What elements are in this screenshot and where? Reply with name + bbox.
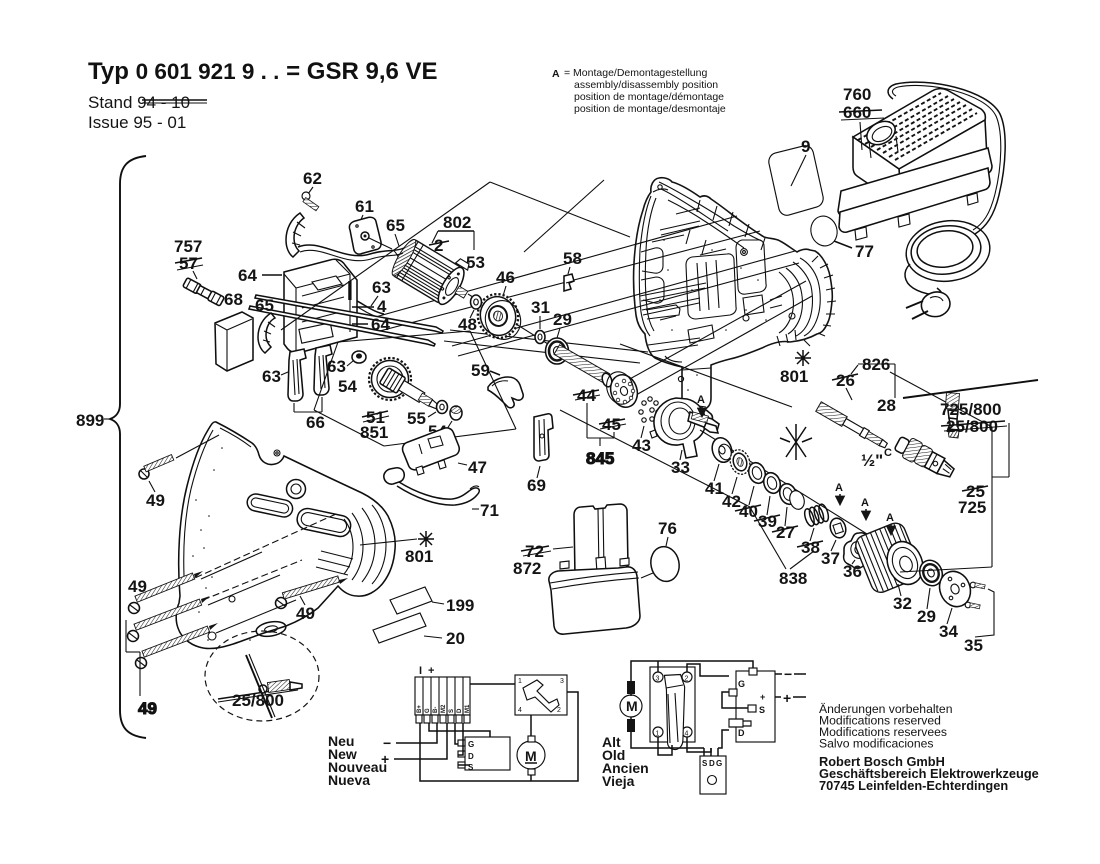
svg-text:44: 44 xyxy=(577,386,596,405)
svg-text:845: 845 xyxy=(586,449,614,468)
svg-text:851: 851 xyxy=(360,423,388,442)
svg-text:29: 29 xyxy=(917,607,936,626)
svg-text:35: 35 xyxy=(964,636,983,655)
svg-text:59: 59 xyxy=(471,361,490,380)
svg-text:801: 801 xyxy=(405,547,433,566)
svg-text:48: 48 xyxy=(458,315,477,334)
svg-text:47: 47 xyxy=(468,458,487,477)
svg-text:D: D xyxy=(709,759,715,768)
svg-text:A: A xyxy=(835,482,843,494)
svg-text:49: 49 xyxy=(146,491,165,510)
svg-text:D: D xyxy=(457,708,463,713)
svg-text:4: 4 xyxy=(685,731,689,738)
svg-text:2: 2 xyxy=(557,707,561,714)
svg-text:55: 55 xyxy=(407,409,426,428)
svg-text:position de montage/démontage: position de montage/démontage xyxy=(574,91,724,103)
svg-text:70745 Leinfelden-Echterdingen: 70745 Leinfelden-Echterdingen xyxy=(819,778,1008,793)
svg-text:43: 43 xyxy=(632,436,651,455)
svg-text:−: − xyxy=(784,666,792,682)
svg-text:Salvo modificaciones: Salvo modificaciones xyxy=(819,737,933,751)
svg-text:25/800: 25/800 xyxy=(232,691,284,710)
svg-text:4: 4 xyxy=(377,297,387,316)
svg-text:65: 65 xyxy=(386,216,405,235)
svg-text:68: 68 xyxy=(224,290,243,309)
svg-text:4: 4 xyxy=(518,707,522,714)
svg-text:53: 53 xyxy=(466,253,485,272)
svg-text:position de montage/desmontaje: position de montage/desmontaje xyxy=(574,103,726,115)
svg-text:46: 46 xyxy=(496,268,515,287)
svg-text:61: 61 xyxy=(355,197,374,216)
svg-text:= Montage/Demontagestellung: = Montage/Demontagestellung xyxy=(564,67,707,79)
svg-text:54: 54 xyxy=(338,377,357,396)
svg-text:64: 64 xyxy=(371,315,390,334)
svg-text:29: 29 xyxy=(553,310,572,329)
svg-text:G: G xyxy=(716,759,722,768)
svg-text:58: 58 xyxy=(563,249,582,268)
svg-text:57: 57 xyxy=(179,254,198,273)
svg-text:26: 26 xyxy=(836,371,855,390)
svg-text:D: D xyxy=(738,728,745,738)
svg-text:B+: B+ xyxy=(417,705,423,713)
svg-text:31: 31 xyxy=(531,298,550,317)
svg-text:725: 725 xyxy=(958,498,986,517)
svg-text:32: 32 xyxy=(893,594,912,613)
svg-text:71: 71 xyxy=(480,501,499,520)
svg-text:77: 77 xyxy=(855,242,874,261)
svg-text:28: 28 xyxy=(877,396,896,415)
svg-text:45: 45 xyxy=(602,415,621,434)
svg-text:+: + xyxy=(783,690,791,706)
svg-text:Nueva: Nueva xyxy=(328,772,370,788)
svg-text:760: 760 xyxy=(843,85,871,104)
svg-text:9: 9 xyxy=(801,137,810,156)
svg-text:66: 66 xyxy=(306,413,325,432)
svg-text:899: 899 xyxy=(76,411,104,430)
svg-text:Vieja: Vieja xyxy=(602,773,635,789)
svg-text:C: C xyxy=(884,447,892,459)
svg-text:B-: B- xyxy=(433,707,439,713)
svg-text:G: G xyxy=(738,679,745,689)
svg-text:+: + xyxy=(428,665,434,677)
svg-text:A: A xyxy=(886,512,894,524)
svg-text:801: 801 xyxy=(780,367,808,386)
svg-text:62: 62 xyxy=(303,169,322,188)
svg-text:Issue 95 - 01: Issue 95 - 01 xyxy=(88,113,186,132)
svg-text:M2: M2 xyxy=(441,704,447,713)
svg-text:G: G xyxy=(425,708,431,713)
svg-text:I: I xyxy=(419,665,422,677)
svg-text:D: D xyxy=(468,752,474,761)
svg-text:34: 34 xyxy=(939,622,958,641)
svg-text:838: 838 xyxy=(779,569,807,588)
svg-text:49: 49 xyxy=(138,699,157,718)
svg-text:A: A xyxy=(861,497,869,509)
svg-text:M: M xyxy=(525,748,537,764)
svg-text:+: + xyxy=(760,692,765,702)
svg-text:S: S xyxy=(449,709,455,713)
svg-text:A: A xyxy=(697,394,705,406)
svg-text:1: 1 xyxy=(656,731,660,738)
svg-text:−: − xyxy=(383,735,391,751)
svg-text:20: 20 xyxy=(446,629,465,648)
svg-text:+: + xyxy=(381,751,389,767)
svg-text:2: 2 xyxy=(685,676,689,683)
svg-text:M: M xyxy=(626,698,638,714)
svg-text:S: S xyxy=(759,705,765,715)
svg-text:40: 40 xyxy=(739,502,758,521)
svg-text:76: 76 xyxy=(658,519,677,538)
svg-text:3: 3 xyxy=(656,676,660,683)
svg-text:S: S xyxy=(702,759,708,768)
svg-text:Typ 0 601 921 9 . . = GSR 9,6: Typ 0 601 921 9 . . = GSR 9,6 VE xyxy=(88,58,438,85)
svg-text:33: 33 xyxy=(671,458,690,477)
svg-text:3: 3 xyxy=(560,678,564,685)
svg-text:49: 49 xyxy=(296,604,315,623)
svg-text:802: 802 xyxy=(443,213,471,232)
svg-text:37: 37 xyxy=(821,549,840,568)
svg-text:A: A xyxy=(552,68,560,80)
svg-text:872: 872 xyxy=(513,559,541,578)
svg-text:199: 199 xyxy=(446,596,474,615)
svg-text:½": ½" xyxy=(861,451,883,470)
svg-text:25/800: 25/800 xyxy=(946,417,998,436)
svg-text:G: G xyxy=(468,740,474,749)
svg-text:36: 36 xyxy=(843,562,862,581)
svg-text:M1: M1 xyxy=(465,704,471,713)
svg-text:69: 69 xyxy=(527,476,546,495)
svg-text:63: 63 xyxy=(262,367,281,386)
svg-text:assembly/disassembly position: assembly/disassembly position xyxy=(574,79,718,91)
svg-text:64: 64 xyxy=(238,266,257,285)
svg-text:1: 1 xyxy=(518,678,522,685)
svg-text:63: 63 xyxy=(372,278,391,297)
